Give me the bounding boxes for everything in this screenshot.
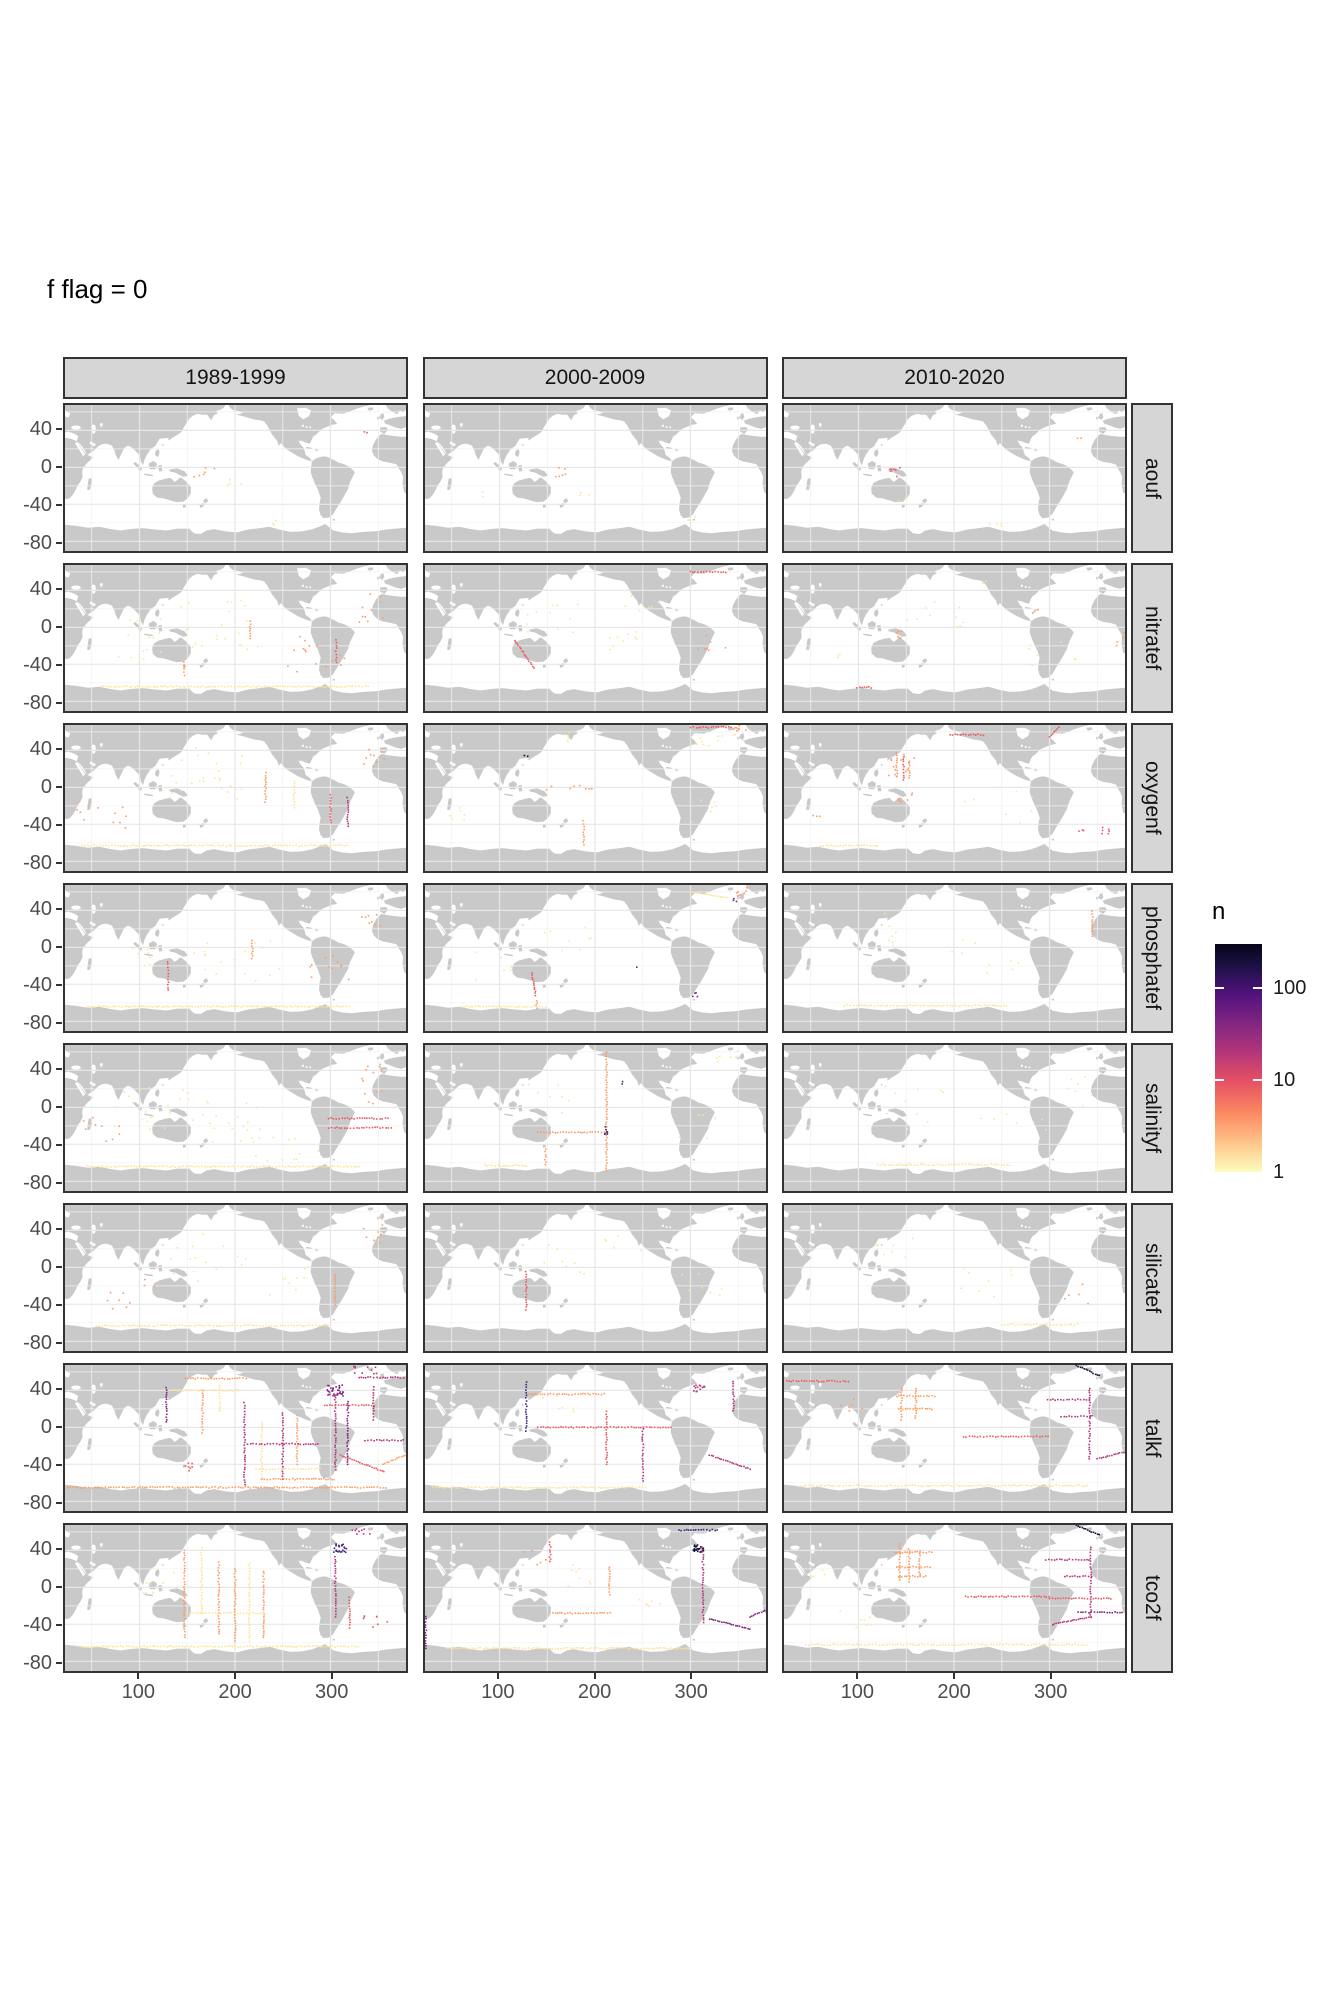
y-axis-tick-label: 40: [0, 739, 52, 759]
y-axis-tick-mark: [56, 1586, 62, 1588]
world-map: [784, 565, 1125, 711]
x-axis-tick-label: 200: [924, 1682, 984, 1702]
world-map: [425, 885, 766, 1031]
facet-row-strip: nitratef: [1131, 563, 1173, 713]
x-axis-tick-mark: [234, 1673, 236, 1679]
map-panel-nitratef-2: [423, 563, 768, 713]
facet-row-strip: oxygenf: [1131, 723, 1173, 873]
world-map: [784, 1365, 1125, 1511]
colorbar-tick-left: [1215, 987, 1224, 989]
x-axis-tick-label: 300: [1021, 1682, 1081, 1702]
world-map: [65, 1365, 406, 1511]
y-axis-tick-label: -80: [0, 1653, 52, 1673]
colorbar-tick-left: [1215, 1079, 1224, 1081]
facet-row-strip: talkf: [1131, 1363, 1173, 1513]
y-axis-tick-mark: [56, 1342, 62, 1344]
map-panel-silicatef-2: [423, 1203, 768, 1353]
legend-tick-label: 100: [1273, 978, 1306, 998]
y-axis-tick-label: 40: [0, 1219, 52, 1239]
world-map: [784, 725, 1125, 871]
map-panel-aouf-3: [782, 403, 1127, 553]
world-map: [65, 1205, 406, 1351]
y-axis-tick-mark: [56, 786, 62, 788]
y-axis-tick-label: 40: [0, 1379, 52, 1399]
x-axis-tick-mark: [137, 1673, 139, 1679]
facet-row-strip: silicatef: [1131, 1203, 1173, 1353]
map-panel-phosphatef-2: [423, 883, 768, 1033]
world-map: [65, 1525, 406, 1671]
y-axis-tick-label: 0: [0, 1097, 52, 1117]
facet-row-strip: aouf: [1131, 403, 1173, 553]
y-axis-tick-mark: [56, 1624, 62, 1626]
x-axis-tick-label: 300: [302, 1682, 362, 1702]
x-axis-tick-mark: [594, 1673, 596, 1679]
map-panel-salinityf-2: [423, 1043, 768, 1193]
facet-row-strip-label: oxygenf: [1140, 761, 1164, 835]
x-axis-tick-label: 100: [108, 1682, 168, 1702]
y-axis-tick-label: -40: [0, 655, 52, 675]
y-axis-tick-label: -80: [0, 1173, 52, 1193]
y-axis-tick-label: 40: [0, 579, 52, 599]
y-axis-tick-mark: [56, 504, 62, 506]
y-axis-tick-mark: [56, 588, 62, 590]
world-map: [65, 565, 406, 711]
y-axis-tick-mark: [56, 428, 62, 430]
map-panel-tco2f-2: [423, 1523, 768, 1673]
y-axis-tick-label: -40: [0, 1295, 52, 1315]
world-map: [425, 1205, 766, 1351]
y-axis-tick-mark: [56, 1182, 62, 1184]
y-axis-tick-mark: [56, 1426, 62, 1428]
world-map: [65, 405, 406, 551]
x-axis-tick-mark: [497, 1673, 499, 1679]
map-panel-oxygenf-3: [782, 723, 1127, 873]
y-axis-tick-mark: [56, 1662, 62, 1664]
y-axis-tick-label: 0: [0, 457, 52, 477]
map-panel-silicatef-3: [782, 1203, 1127, 1353]
facet-column-strip-label: 1989-1999: [185, 366, 285, 390]
y-axis-tick-label: -80: [0, 1013, 52, 1033]
facet-row-strip: phosphatef: [1131, 883, 1173, 1033]
y-axis-tick-label: 0: [0, 617, 52, 637]
world-map: [784, 1045, 1125, 1191]
y-axis-tick-label: 40: [0, 419, 52, 439]
world-map: [65, 725, 406, 871]
map-panel-aouf-2: [423, 403, 768, 553]
y-axis-tick-label: -80: [0, 1333, 52, 1353]
y-axis-tick-mark: [56, 664, 62, 666]
facet-column-strip: 2010-2020: [782, 357, 1127, 399]
y-axis-tick-label: -40: [0, 1615, 52, 1635]
map-panel-salinityf-1: [63, 1043, 408, 1193]
x-axis-tick-mark: [331, 1673, 333, 1679]
world-map: [784, 405, 1125, 551]
y-axis-tick-label: 0: [0, 1257, 52, 1277]
y-axis-tick-label: 0: [0, 777, 52, 797]
facet-column-strip: 2000-2009: [423, 357, 768, 399]
y-axis-tick-mark: [56, 542, 62, 544]
y-axis-tick-mark: [56, 1304, 62, 1306]
x-axis-tick-label: 300: [661, 1682, 721, 1702]
legend-title: n: [1212, 898, 1225, 926]
y-axis-tick-label: 40: [0, 1059, 52, 1079]
y-axis-tick-label: 40: [0, 1539, 52, 1559]
facet-column-strip-label: 2010-2020: [904, 366, 1004, 390]
y-axis-tick-label: -80: [0, 693, 52, 713]
facet-row-strip-label: salinityf: [1140, 1083, 1164, 1153]
y-axis-tick-mark: [56, 1022, 62, 1024]
map-panel-oxygenf-1: [63, 723, 408, 873]
y-axis-tick-mark: [56, 1068, 62, 1070]
world-map: [425, 565, 766, 711]
map-panel-talkf-1: [63, 1363, 408, 1513]
world-map: [784, 885, 1125, 1031]
world-map: [425, 1365, 766, 1511]
x-axis-tick-label: 100: [468, 1682, 528, 1702]
y-axis-tick-mark: [56, 1388, 62, 1390]
map-panel-nitratef-3: [782, 563, 1127, 713]
map-panel-phosphatef-1: [63, 883, 408, 1033]
world-map: [425, 405, 766, 551]
y-axis-tick-mark: [56, 1548, 62, 1550]
world-map: [784, 1205, 1125, 1351]
x-axis-tick-label: 100: [827, 1682, 887, 1702]
world-map: [65, 1045, 406, 1191]
map-panel-talkf-2: [423, 1363, 768, 1513]
y-axis-tick-mark: [56, 946, 62, 948]
facet-row-strip-label: talkf: [1140, 1419, 1164, 1458]
x-axis-tick-mark: [690, 1673, 692, 1679]
facet-column-strip: 1989-1999: [63, 357, 408, 399]
colorbar-gradient: [1215, 944, 1262, 1172]
y-axis-tick-mark: [56, 908, 62, 910]
facet-row-strip-label: tco2f: [1140, 1575, 1164, 1621]
facet-column-strip-label: 2000-2009: [545, 366, 645, 390]
y-axis-tick-mark: [56, 748, 62, 750]
facet-row-strip-label: nitratef: [1140, 606, 1164, 670]
y-axis-tick-mark: [56, 702, 62, 704]
y-axis-tick-mark: [56, 466, 62, 468]
y-axis-tick-mark: [56, 1106, 62, 1108]
x-axis-tick-label: 200: [565, 1682, 625, 1702]
x-axis-tick-mark: [1050, 1673, 1052, 1679]
world-map: [425, 1525, 766, 1671]
y-axis-tick-mark: [56, 1144, 62, 1146]
facet-row-strip: tco2f: [1131, 1523, 1173, 1673]
y-axis-tick-mark: [56, 1502, 62, 1504]
y-axis-tick-label: 40: [0, 899, 52, 919]
y-axis-tick-label: -40: [0, 815, 52, 835]
y-axis-tick-label: -80: [0, 533, 52, 553]
y-axis-tick-label: 0: [0, 1417, 52, 1437]
map-panel-phosphatef-3: [782, 883, 1127, 1033]
facet-row-strip-label: silicatef: [1140, 1243, 1164, 1313]
world-map: [425, 725, 766, 871]
y-axis-tick-label: -80: [0, 1493, 52, 1513]
world-map: [425, 1045, 766, 1191]
y-axis-tick-mark: [56, 984, 62, 986]
plot-title: f flag = 0: [47, 274, 147, 305]
map-panel-silicatef-1: [63, 1203, 408, 1353]
legend-tick-label: 10: [1273, 1070, 1295, 1090]
y-axis-tick-label: -40: [0, 1455, 52, 1475]
map-panel-nitratef-1: [63, 563, 408, 713]
figure: f flag = 0 1989-19992000-20092010-2020 a…: [0, 0, 1344, 2016]
map-panel-oxygenf-2: [423, 723, 768, 873]
map-panel-aouf-1: [63, 403, 408, 553]
colorbar-tick-right: [1253, 987, 1262, 989]
facet-row-strip-label: aouf: [1140, 458, 1164, 499]
y-axis-tick-label: 0: [0, 1577, 52, 1597]
y-axis-tick-label: -40: [0, 1135, 52, 1155]
y-axis-tick-mark: [56, 1266, 62, 1268]
y-axis-tick-label: -40: [0, 975, 52, 995]
map-panel-tco2f-3: [782, 1523, 1127, 1673]
facet-row-strip: salinityf: [1131, 1043, 1173, 1193]
y-axis-tick-mark: [56, 1464, 62, 1466]
x-axis-tick-mark: [953, 1673, 955, 1679]
y-axis-tick-label: -80: [0, 853, 52, 873]
map-panel-talkf-3: [782, 1363, 1127, 1513]
y-axis-tick-mark: [56, 626, 62, 628]
map-panel-salinityf-3: [782, 1043, 1127, 1193]
y-axis-tick-label: 0: [0, 937, 52, 957]
y-axis-tick-mark: [56, 1228, 62, 1230]
world-map: [784, 1525, 1125, 1671]
legend-tick-label: 1: [1273, 1162, 1284, 1182]
world-map: [65, 885, 406, 1031]
colorbar-tick-right: [1253, 1079, 1262, 1081]
y-axis-tick-mark: [56, 824, 62, 826]
x-axis-tick-mark: [856, 1673, 858, 1679]
facet-row-strip-label: phosphatef: [1140, 906, 1164, 1010]
x-axis-tick-label: 200: [205, 1682, 265, 1702]
map-panel-tco2f-1: [63, 1523, 408, 1673]
y-axis-tick-mark: [56, 862, 62, 864]
y-axis-tick-label: -40: [0, 495, 52, 515]
